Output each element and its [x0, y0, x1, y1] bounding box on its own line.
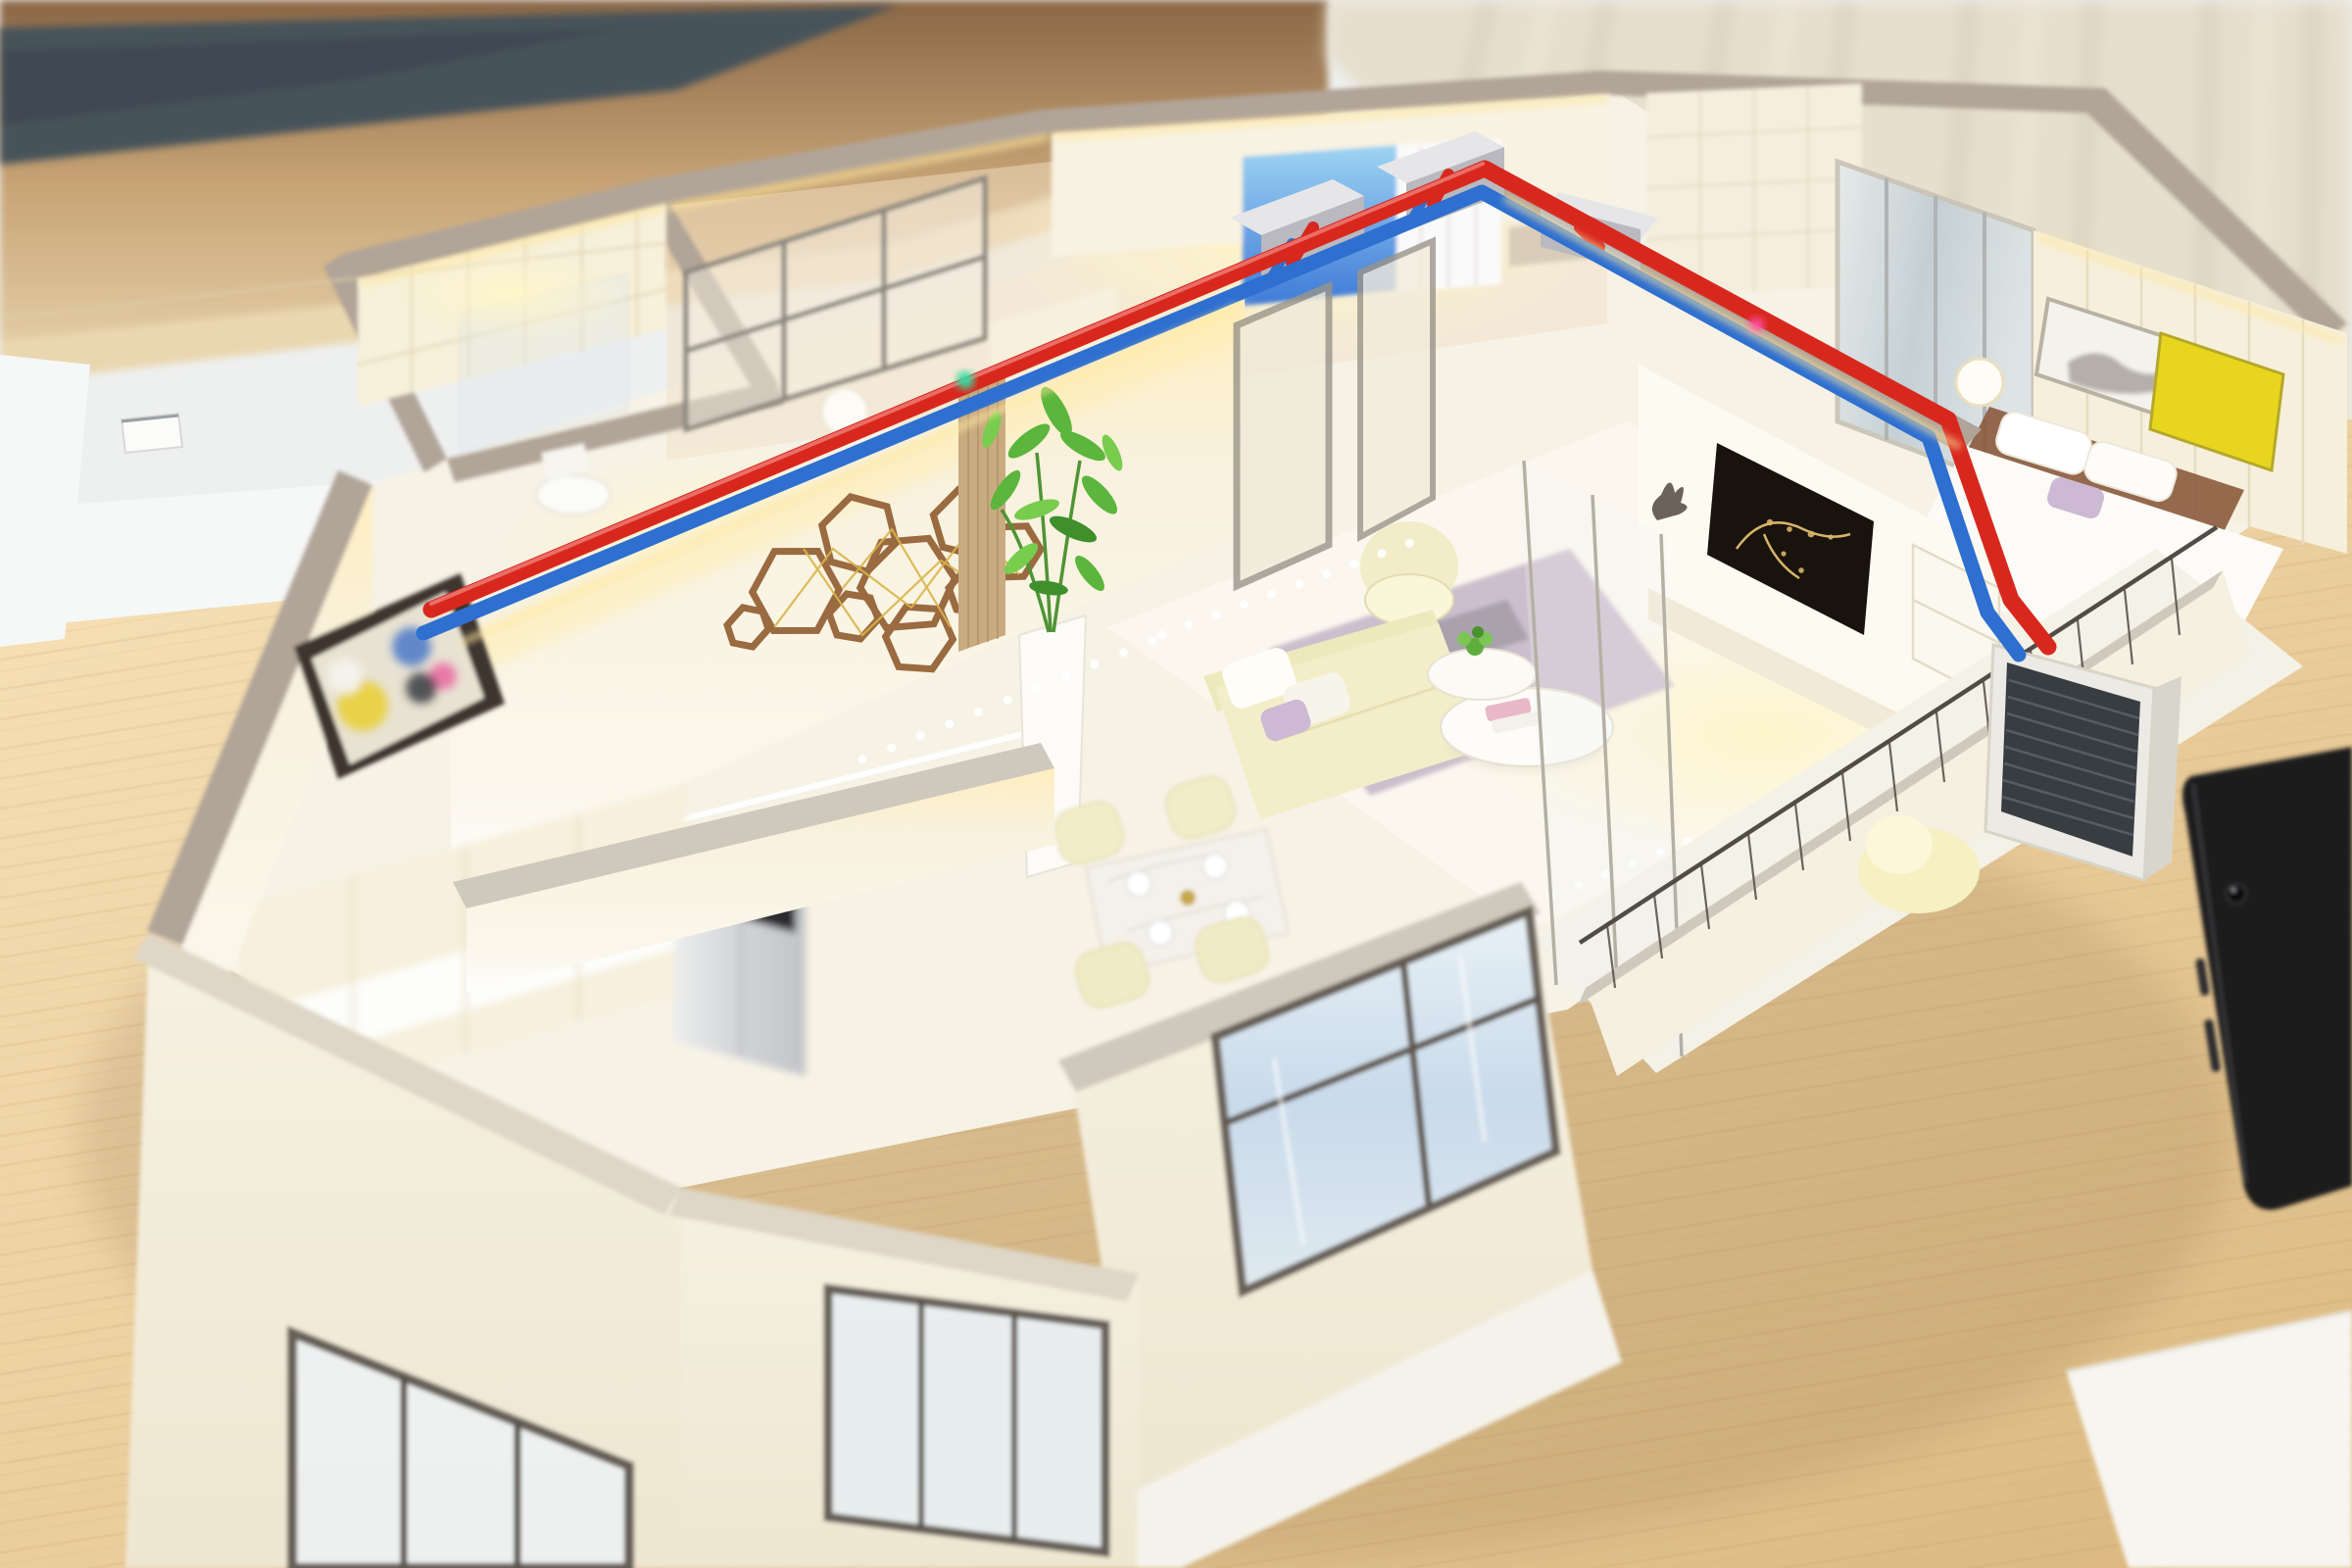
small-white-box: small white box on the left shelf [122, 414, 182, 453]
dining-window-glass [828, 1289, 1105, 1552]
scene-svg: pale backdrop wall wooden shelf edge beh… [0, 0, 2352, 1568]
sphere-lamp [1956, 359, 2003, 406]
pipe-led-green [956, 371, 974, 389]
toilet [536, 475, 611, 514]
dining-window [828, 1289, 1105, 1552]
centerpiece [1180, 890, 1196, 906]
coffee-table-small [1428, 649, 1536, 700]
glass-door [1237, 286, 1329, 586]
room-hallway: back hallway with quilted tile wall [1646, 83, 1862, 296]
lounge-chair-back [1866, 815, 1933, 874]
camera-glint [2231, 888, 2236, 893]
glass-door [1360, 241, 1433, 537]
bathroom-glow [392, 250, 627, 338]
photo-canvas: pale backdrop wall wooden shelf edge beh… [0, 0, 2352, 1568]
tablet-camera [2227, 884, 2246, 904]
